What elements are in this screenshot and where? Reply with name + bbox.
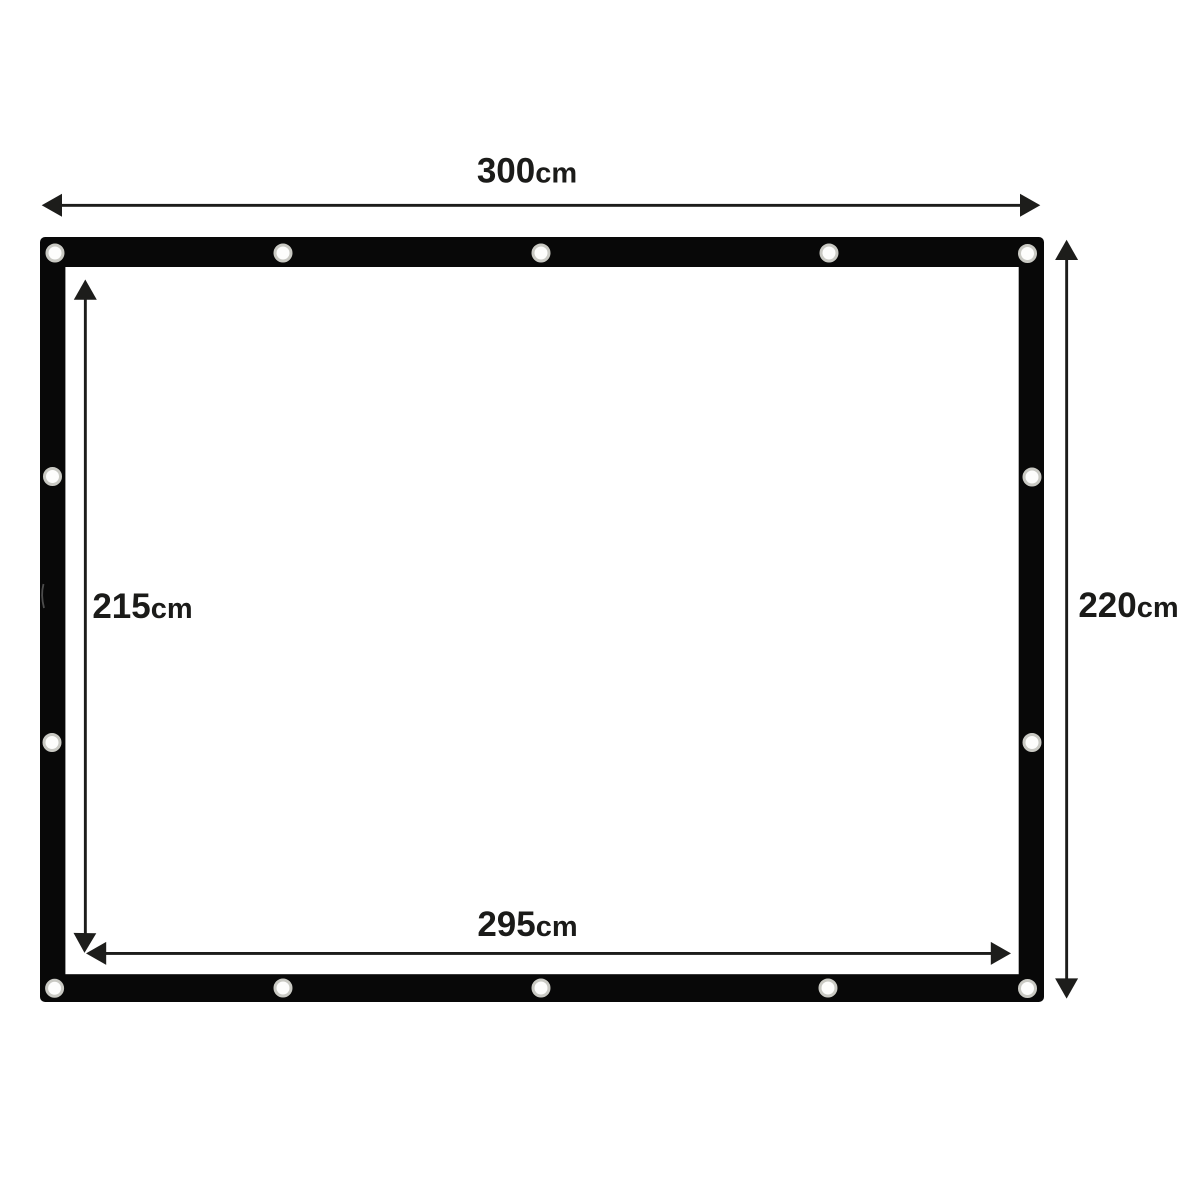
svg-text:300cm: 300cm <box>477 152 577 191</box>
svg-text:220cm: 220cm <box>1078 586 1178 625</box>
svg-text:215cm: 215cm <box>92 587 192 626</box>
svg-text:295cm: 295cm <box>477 905 577 944</box>
